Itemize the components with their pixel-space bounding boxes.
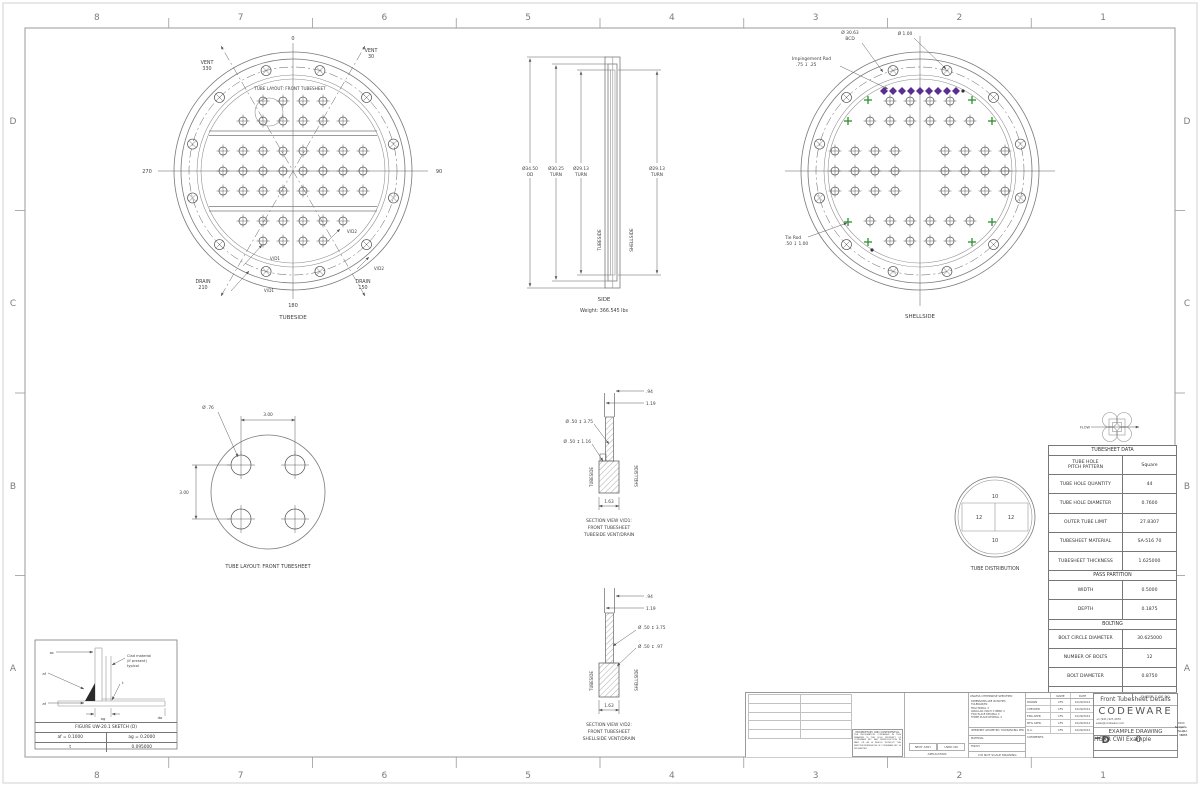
sheet-number: SHEET 7 OF 20 xyxy=(1132,694,1177,700)
detail-holes xyxy=(227,451,309,533)
svg-text:.75 ↧ .25: .75 ↧ .25 xyxy=(796,62,817,68)
side-label-shellside: SHELLSIDE xyxy=(629,228,635,252)
svg-text:5: 5 xyxy=(525,771,531,781)
company-email: sales@codeware.com xyxy=(1096,722,1124,726)
svg-text:30: 30 xyxy=(368,54,374,60)
company-block: Front Tubesheet Details CODEWARE +1 (941… xyxy=(1093,693,1178,758)
shellside-view: Ø 30.63 BCD Ø 1.00 Impingement Rod .75 ↧… xyxy=(784,29,1055,320)
application-caption: APPLICATION xyxy=(905,752,969,756)
table-label-cell: TUBE HOLE PITCH PATTERN xyxy=(1049,456,1123,474)
vd2-tubeside: TUBESIDE xyxy=(589,671,594,692)
used-on-cell: USED ON xyxy=(937,743,965,751)
impingement-rod-mark xyxy=(934,87,942,95)
svg-text:.50 ↧ 1.00: .50 ↧ 1.00 xyxy=(785,241,808,247)
material-label: MATERIAL xyxy=(971,737,984,740)
table-value-cell: 0.8750 xyxy=(1123,668,1176,686)
svg-text:Ø .50 ↧ 3.75: Ø .50 ↧ 3.75 xyxy=(638,624,666,631)
impingement-rod-marks xyxy=(870,87,964,252)
uw20-labels: ac af af ag do t Clad material (if prese… xyxy=(42,650,163,721)
svg-text:4: 4 xyxy=(669,771,675,781)
uw20-t-value: 0.095000 xyxy=(106,743,178,752)
comments-label: COMMENTS: xyxy=(1027,735,1044,739)
table-row: TUBESHEET MATERIALSA-516 70 xyxy=(1049,533,1176,552)
impingement-rod-mark xyxy=(889,87,897,95)
title-block: PROPRIETARY AND CONFIDENTIAL THE INFORMA… xyxy=(745,692,1177,757)
flow-pattern-icon: FLOW xyxy=(1080,413,1139,442)
small-dot xyxy=(870,248,873,251)
approval-role: DRAWN xyxy=(1026,699,1050,705)
svg-text:B: B xyxy=(10,482,16,492)
approval-date: 10/29/2012 xyxy=(1070,706,1094,712)
svg-text:OD: OD xyxy=(527,172,534,178)
table-value-cell: 1.625000 xyxy=(1123,552,1176,570)
rev-label: REV xyxy=(1094,736,1100,740)
table-row: TUBE HOLE QUANTITY44 xyxy=(1049,475,1176,494)
approval-grid: NAME DATE DRAWNCFS10/29/2012CHECKEDCFS10… xyxy=(1025,693,1093,758)
svg-text:4: 4 xyxy=(669,13,675,23)
svg-text:8: 8 xyxy=(94,13,100,23)
drawing-canvas: 87 65 43 21 87 65 43 21 DC BA DC BA xyxy=(0,0,1200,786)
view-caption-tubeside: TUBESIDE xyxy=(278,315,307,321)
approval-role: Q.A. xyxy=(1026,727,1050,733)
view-inner-title: TUBE LAYOUT: FRONT TUBESHEET xyxy=(253,86,326,91)
table-row: DEPTH0.1875 xyxy=(1049,600,1176,619)
table-label-cell: TUBESHEET THICKNESS xyxy=(1049,552,1123,570)
table-value-cell: 44 xyxy=(1123,475,1176,493)
weld-symbol xyxy=(85,683,95,701)
svg-text:ag: ag xyxy=(101,716,106,721)
vd2-shellside: SHELLSIDE xyxy=(634,669,639,691)
detail-dim-v: 3.00 xyxy=(179,490,189,496)
tubesheet-data-table: TUBESHEET DATATUBE HOLE PITCH PATTERNSqu… xyxy=(1048,445,1177,706)
svg-text:Ø .50 ↧ 1.16: Ø .50 ↧ 1.16 xyxy=(564,438,592,445)
unless-header: UNLESS OTHERWISE SPECIFIED: xyxy=(970,694,1025,698)
impingement-rod-mark xyxy=(916,87,924,95)
svg-text:SECTION VIEW V/D1:: SECTION VIEW V/D1: xyxy=(586,518,632,524)
svg-text:7: 7 xyxy=(238,771,244,781)
company-address2: Sarasota, FL, USA 34238 xyxy=(1175,726,1187,738)
svg-text:10: 10 xyxy=(992,538,998,544)
svg-text:FRONT TUBESHEET: FRONT TUBESHEET xyxy=(588,729,631,735)
svg-text:SHELLSIDE VENT/DRAIN: SHELLSIDE VENT/DRAIN xyxy=(583,736,635,742)
impingement-rod-mark xyxy=(943,87,951,95)
svg-text:6: 6 xyxy=(382,13,388,23)
proprietary-note: PROPRIETARY AND CONFIDENTIAL THE INFORMA… xyxy=(852,729,903,757)
proprietary-body: THE INFORMATION CONTAINED IN THIS DRAWIN… xyxy=(854,734,901,750)
interpret-note: INTERPRET GEOMETRIC TOLERANCING PER: xyxy=(971,729,1025,732)
svg-text:FRONT TUBESHEET: FRONT TUBESHEET xyxy=(588,525,631,531)
uw20-t-label: t xyxy=(35,743,106,752)
svg-text:150: 150 xyxy=(358,285,367,291)
table-value-cell: 0.7600 xyxy=(1123,494,1176,512)
table-label-cell: WIDTH xyxy=(1049,581,1123,599)
approval-name: CFS xyxy=(1050,720,1070,726)
application-zone: NEXT ASSY USED ON APPLICATION xyxy=(904,693,968,758)
side-dim-labels: Ø34.50OD Ø30.25TURN Ø29.13TURN Ø29.13TUR… xyxy=(520,163,667,178)
section-vd1: .94 1.19 Ø .50 ↧ 3.75 Ø .50 ↧ 1.16 1.63 … xyxy=(564,389,656,538)
do-not-scale-label: DO NOT SCALE DRAWING xyxy=(969,753,1026,757)
svg-text:8: 8 xyxy=(94,771,100,781)
svg-text:12: 12 xyxy=(1008,515,1014,521)
uw20-title: FIGURE UW-20.1 SKETCH (D) xyxy=(35,723,177,732)
table-label-cell: DEPTH xyxy=(1049,600,1123,618)
angle-180: 180 xyxy=(288,303,298,309)
detail-hole-dia: Ø .76 xyxy=(202,404,214,411)
table-row: BOLT DIAMETER0.8750 xyxy=(1049,668,1176,687)
table-value-cell: Square xyxy=(1123,456,1176,474)
nozzle-labels: VENT330 VENT30 DRAIN210 DRAIN150 V/D1 V/… xyxy=(195,48,384,293)
table-row: TUBESHEET THICKNESS1.625000 xyxy=(1049,552,1176,571)
svg-text:Ø34.50: Ø34.50 xyxy=(522,165,538,172)
angle-0: 0 xyxy=(291,36,294,42)
table-row: BOLT CIRCLE DIAMETER30.625000 xyxy=(1049,630,1176,649)
next-assy-cell: NEXT ASSY xyxy=(909,743,937,751)
svg-text:7: 7 xyxy=(238,13,244,23)
svg-text:330: 330 xyxy=(202,66,211,72)
detail-caption: TUBE LAYOUT: FRONT TUBESHEET xyxy=(224,564,311,570)
svg-text:C: C xyxy=(1184,299,1190,309)
table-value-cell: 27.8307 xyxy=(1123,514,1176,532)
approval-row: Q.A.CFS10/29/2012 xyxy=(1026,727,1094,734)
approval-date: 10/29/2012 xyxy=(1070,727,1094,733)
svg-text:af: af xyxy=(42,671,46,676)
vd1-tubeside: TUBESIDE xyxy=(589,467,594,488)
approval-name: CFS xyxy=(1050,727,1070,733)
svg-text:Ø29.13: Ø29.13 xyxy=(573,165,589,172)
svg-text:Ø30.25: Ø30.25 xyxy=(548,165,564,172)
svg-text:t: t xyxy=(122,680,124,685)
table-label-cell: BOLT CIRCLE DIAMETER xyxy=(1049,630,1123,648)
uw20-af: af = 0.1000 xyxy=(35,733,106,742)
name-header: NAME xyxy=(1050,693,1070,698)
tubeside-view: TUBE LAYOUT: FRONT TUBESHEET 0 180 270 9… xyxy=(142,36,442,321)
svg-text:af: af xyxy=(42,701,46,706)
table-label-cell: TUBE HOLE QUANTITY xyxy=(1049,475,1123,493)
svg-text:Impingement Rod: Impingement Rod xyxy=(792,56,831,62)
uw20-ag: ag = 0.2000 xyxy=(106,733,178,742)
svg-text:3: 3 xyxy=(813,13,819,23)
approval-role: ENG APPR. xyxy=(1026,713,1050,719)
table-label-cell: OUTER TUBE LIMIT xyxy=(1049,514,1123,532)
impingement-rod-mark xyxy=(925,87,933,95)
tolerance-lines: DIMENSIONS ARE IN INCHES TOLERANCES: FRA… xyxy=(971,700,1025,720)
svg-text:10: 10 xyxy=(992,494,998,500)
svg-text:Tie Rod: Tie Rod xyxy=(784,235,801,241)
svg-text:1.63: 1.63 xyxy=(604,703,614,709)
finish-label: FINISH xyxy=(971,745,980,748)
view-caption-side: SIDE xyxy=(598,297,611,303)
small-dot xyxy=(961,89,964,92)
svg-text:TURN: TURN xyxy=(650,172,663,178)
detail-dim-h: 3.00 xyxy=(263,412,273,418)
table-section-header: BOLTING xyxy=(1049,620,1176,630)
svg-text:ac: ac xyxy=(50,650,54,655)
svg-text:Ø .50 ↧ .97: Ø .50 ↧ .97 xyxy=(638,643,663,650)
svg-text:2: 2 xyxy=(957,771,963,781)
svg-text:12: 12 xyxy=(976,515,982,521)
svg-text:1.19: 1.19 xyxy=(646,401,656,407)
svg-text:DRAIN: DRAIN xyxy=(355,279,371,285)
svg-text:Ø 30.63: Ø 30.63 xyxy=(841,29,859,36)
svg-text:.94: .94 xyxy=(646,389,653,395)
svg-text:C: C xyxy=(10,299,16,309)
flow-label: FLOW xyxy=(1080,426,1091,430)
approval-date: 10/29/2012 xyxy=(1070,720,1094,726)
svg-text:SECTION VIEW V/D2:: SECTION VIEW V/D2: xyxy=(586,722,632,728)
svg-text:3: 3 xyxy=(813,771,819,781)
svg-text:typical: typical xyxy=(127,664,139,668)
approval-row: MFG APPR.CFS10/29/2012 xyxy=(1026,720,1094,727)
table-label-cell: BOLT DIAMETER xyxy=(1049,668,1123,686)
revision-grid xyxy=(748,694,852,739)
approval-name: CFS xyxy=(1050,706,1070,712)
table-value-cell: 0.1875 xyxy=(1123,600,1176,618)
uw20-table: FIGURE UW-20.1 SKETCH (D) af = 0.1000 ag… xyxy=(35,722,177,752)
svg-text:Ø29.13: Ø29.13 xyxy=(649,165,665,172)
table-row: TUBE HOLE DIAMETER0.7600 xyxy=(1049,494,1176,513)
view-caption-shellside: SHELLSIDE xyxy=(905,314,936,320)
table-row: WIDTH0.5000 xyxy=(1049,581,1176,600)
svg-text:VENT: VENT xyxy=(201,60,214,66)
svg-text:.94: .94 xyxy=(646,594,653,600)
table-label-cell: TUBESHEET MATERIAL xyxy=(1049,533,1123,551)
table-value-cell: 30.625000 xyxy=(1123,630,1176,648)
approval-name: CFS xyxy=(1050,699,1070,705)
rev-value: 0 xyxy=(1136,736,1142,745)
vd2-caption: SECTION VIEW V/D2: FRONT TUBESHEET SHELL… xyxy=(583,722,635,742)
svg-text:1: 1 xyxy=(1100,771,1106,781)
svg-text:TURN: TURN xyxy=(549,172,562,178)
vd1-caption: SECTION VIEW V/D1: FRONT TUBESHEET TUBES… xyxy=(583,518,634,538)
table-row: NUMBER OF BOLTS12 xyxy=(1049,649,1176,668)
detail-dims xyxy=(192,412,295,519)
svg-text:A: A xyxy=(1184,664,1191,674)
tolerance-block: UNLESS OTHERWISE SPECIFIED: DIMENSIONS A… xyxy=(968,693,1025,758)
approval-role: MFG APPR. xyxy=(1026,720,1050,726)
svg-text:DRAIN: DRAIN xyxy=(195,279,211,285)
approval-row: DRAWNCFS10/29/2012 xyxy=(1026,699,1094,706)
table-value-cell: SA-516 70 xyxy=(1123,533,1176,551)
table-label-cell: TUBE HOLE DIAMETER xyxy=(1049,494,1123,512)
angle-90: 90 xyxy=(436,169,442,175)
dwg-no-value: HGXR CWI Example xyxy=(1094,736,1151,745)
svg-text:5: 5 xyxy=(525,13,531,23)
section-vd2: .94 1.19 Ø .50 ↧ 3.75 Ø .50 ↧ .97 1.63 T… xyxy=(583,588,666,742)
svg-text:VENT: VENT xyxy=(365,48,378,54)
distribution-caption: TUBE DISTRIBUTION xyxy=(970,566,1020,572)
approval-date: 10/29/2012 xyxy=(1070,713,1094,719)
approval-row: ENG APPR.CFS10/29/2012 xyxy=(1026,713,1094,720)
table-label-cell: NUMBER OF BOLTS xyxy=(1049,649,1123,667)
svg-text:V/D1: V/D1 xyxy=(270,256,280,261)
company-name: CODEWARE xyxy=(1094,706,1177,718)
svg-text:1.19: 1.19 xyxy=(646,606,656,612)
impingement-rod-mark xyxy=(907,87,915,95)
approval-row: CHECKEDCFS10/29/2012 xyxy=(1026,706,1094,713)
side-view: Ø34.50OD Ø30.25TURN Ø29.13TURN Ø29.13TUR… xyxy=(520,57,667,314)
svg-text:D: D xyxy=(1184,117,1191,127)
svg-text:1.63: 1.63 xyxy=(604,499,614,505)
svg-text:210: 210 xyxy=(198,285,207,291)
svg-text:1: 1 xyxy=(1100,13,1106,23)
svg-text:TUBESIDE VENT/DRAIN: TUBESIDE VENT/DRAIN xyxy=(583,532,634,538)
svg-text:Ø .50 ↧ 3.75: Ø .50 ↧ 3.75 xyxy=(566,418,594,425)
svg-text:Clad material: Clad material xyxy=(127,654,151,658)
table-value-cell: 0.5000 xyxy=(1123,581,1176,599)
svg-text:TURN: TURN xyxy=(574,172,587,178)
svg-text:do: do xyxy=(158,715,163,720)
weight-label: Weight: 366.545 lbs xyxy=(580,308,629,314)
table-section-header: TUBESHEET DATA xyxy=(1049,446,1176,456)
svg-text:6: 6 xyxy=(382,771,388,781)
svg-text:Ø 1.00: Ø 1.00 xyxy=(898,30,913,37)
svg-text:B: B xyxy=(1184,482,1190,492)
drawing-sheet: 87 65 43 21 87 65 43 21 DC BA DC BA xyxy=(0,0,1200,786)
vd1-shellside: SHELLSIDE xyxy=(634,465,639,487)
approval-role: CHECKED xyxy=(1026,706,1050,712)
svg-text:V/D2: V/D2 xyxy=(347,229,357,234)
table-row: OUTER TUBE LIMIT27.8307 xyxy=(1049,514,1176,533)
svg-text:2: 2 xyxy=(957,13,963,23)
svg-text:A: A xyxy=(10,664,17,674)
approval-name: CFS xyxy=(1050,713,1070,719)
shellside-labels: Ø 30.63 BCD Ø 1.00 Impingement Rod .75 ↧… xyxy=(784,29,913,247)
table-section-header: PASS PARTITION xyxy=(1049,571,1176,581)
tube-distribution: 10 12 12 10 TUBE DISTRIBUTION xyxy=(955,477,1035,572)
company-contact: +1 (941) 927-2670 sales@codeware.com 650… xyxy=(1094,718,1177,727)
svg-text:(if present): (if present) xyxy=(127,659,147,663)
svg-text:BCD: BCD xyxy=(845,36,855,42)
table-row: TUBE HOLE PITCH PATTERNSquare xyxy=(1049,456,1176,475)
angle-270: 270 xyxy=(142,169,152,175)
table-value-cell: 12 xyxy=(1123,649,1176,667)
side-label-tubeside: TUBESIDE xyxy=(597,229,603,252)
svg-text:V/D2: V/D2 xyxy=(374,266,384,271)
approval-date: 10/29/2012 xyxy=(1070,699,1094,705)
impingement-rod-mark xyxy=(898,87,906,95)
svg-text:D: D xyxy=(10,117,17,127)
svg-text:V/D1: V/D1 xyxy=(264,288,274,293)
impingement-rod-mark xyxy=(952,87,960,95)
tube-layout-detail: 3.00 3.00 Ø .76 TUBE LAYOUT: FRONT TUBES… xyxy=(179,404,325,570)
date-header: DATE xyxy=(1070,693,1094,698)
